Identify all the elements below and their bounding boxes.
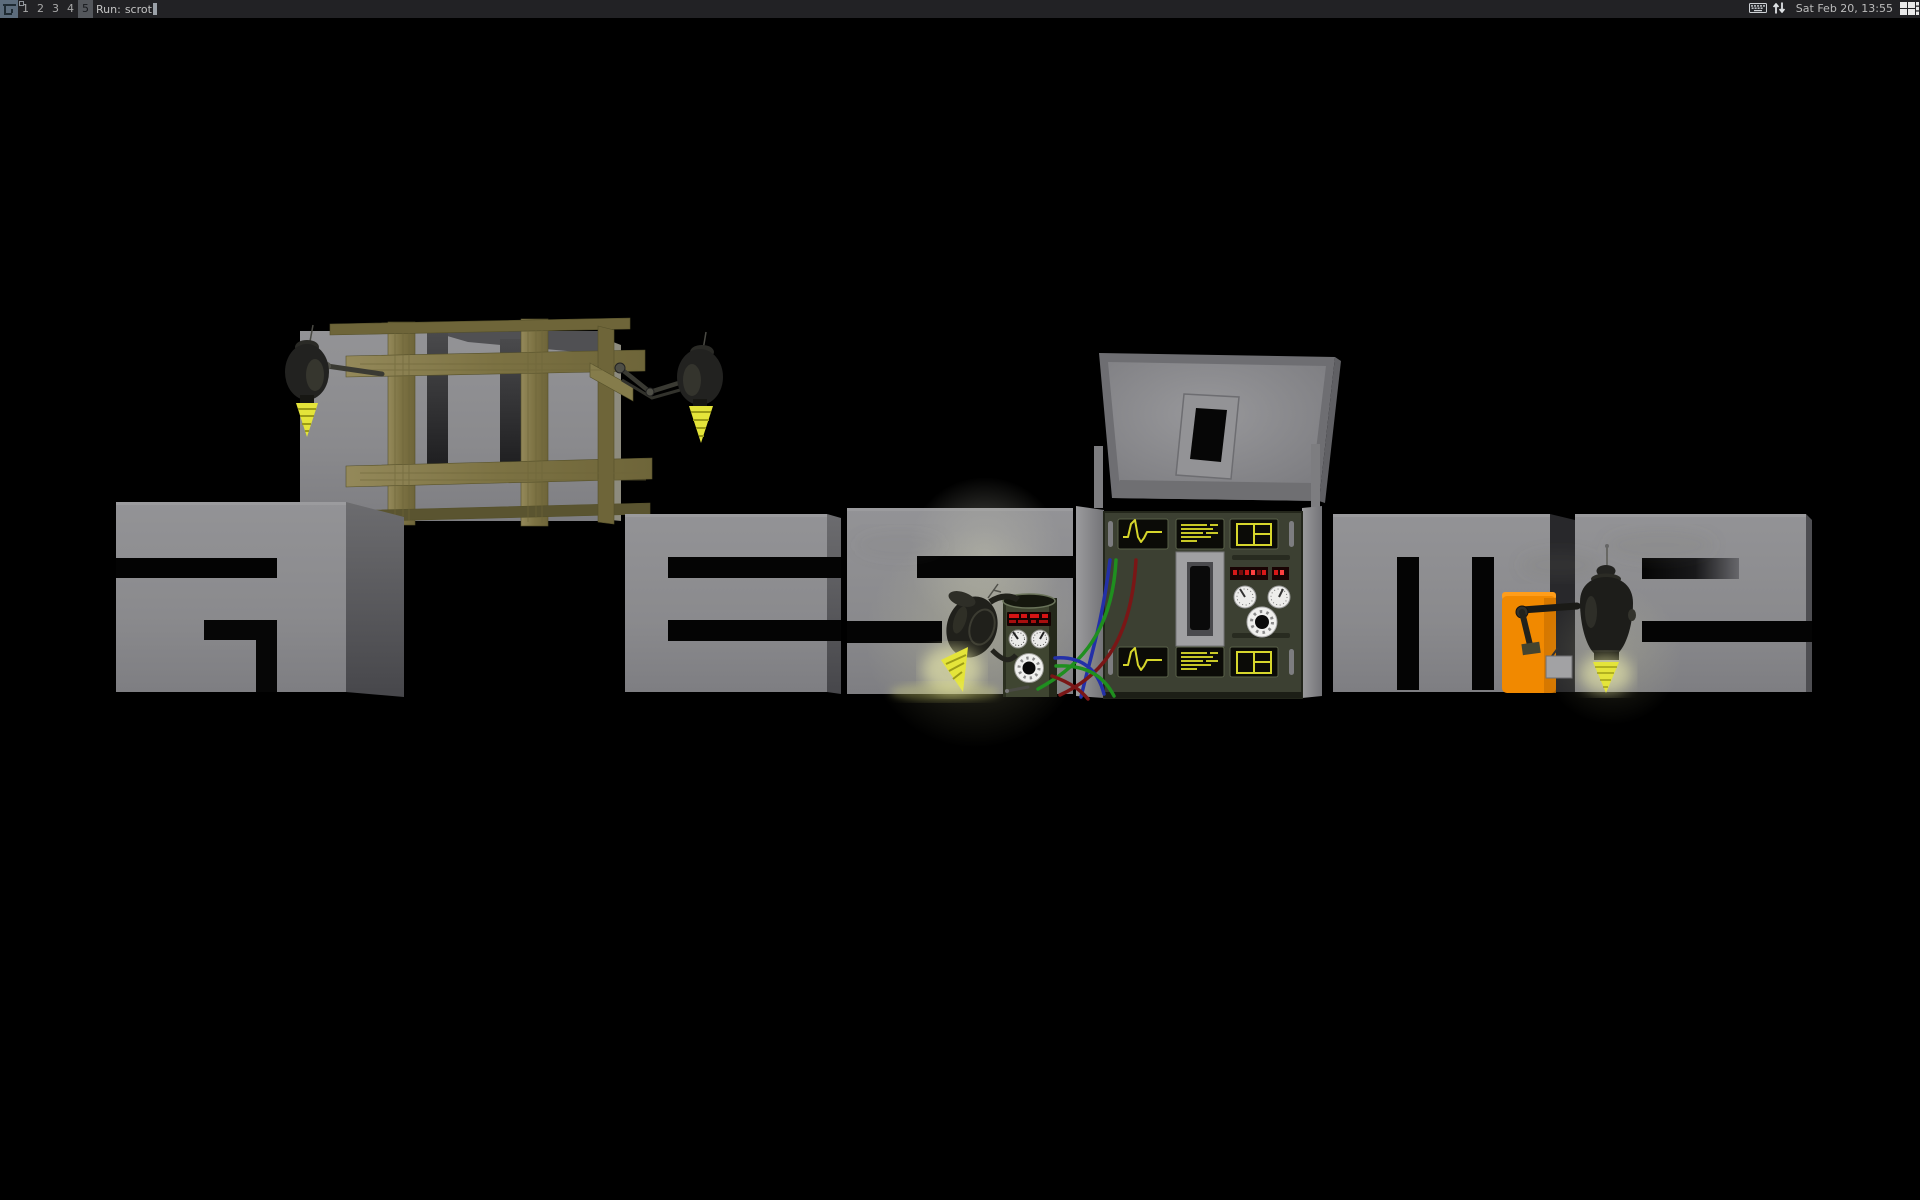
taglist: 1 2 3 4 5: [18, 0, 93, 18]
tag-4[interactable]: 4: [63, 0, 78, 18]
tag-1[interactable]: 1: [18, 0, 33, 18]
keyboard-icon[interactable]: [1749, 2, 1767, 17]
tag-2[interactable]: 2: [33, 0, 48, 18]
awesome-launcher-icon[interactable]: [0, 0, 18, 18]
wallpaper-awesome: [0, 0, 1920, 1200]
tag-3[interactable]: 3: [48, 0, 63, 18]
layoutbox-icon[interactable]: [1898, 0, 1920, 18]
wibar: 1 2 3 4 5 Run: scrot: [0, 0, 1920, 18]
desktop: 1 2 3 4 5 Run: scrot: [0, 0, 1920, 1200]
prompt-label: Run:: [96, 1, 121, 18]
letter-w-crate: [285, 318, 723, 526]
tag-5[interactable]: 5: [78, 0, 93, 18]
tasklist-empty: [157, 0, 1749, 18]
console-screen-row: [1108, 519, 1294, 549]
systray: [1749, 0, 1786, 18]
letter-e1: [625, 514, 841, 694]
prompt-command: scrot: [125, 1, 152, 18]
run-prompt[interactable]: Run: scrot: [96, 0, 157, 18]
letter-a: [116, 502, 404, 697]
clock: Sat Feb 20, 13:55: [1796, 0, 1893, 18]
arrows-updown-icon[interactable]: [1772, 1, 1786, 18]
